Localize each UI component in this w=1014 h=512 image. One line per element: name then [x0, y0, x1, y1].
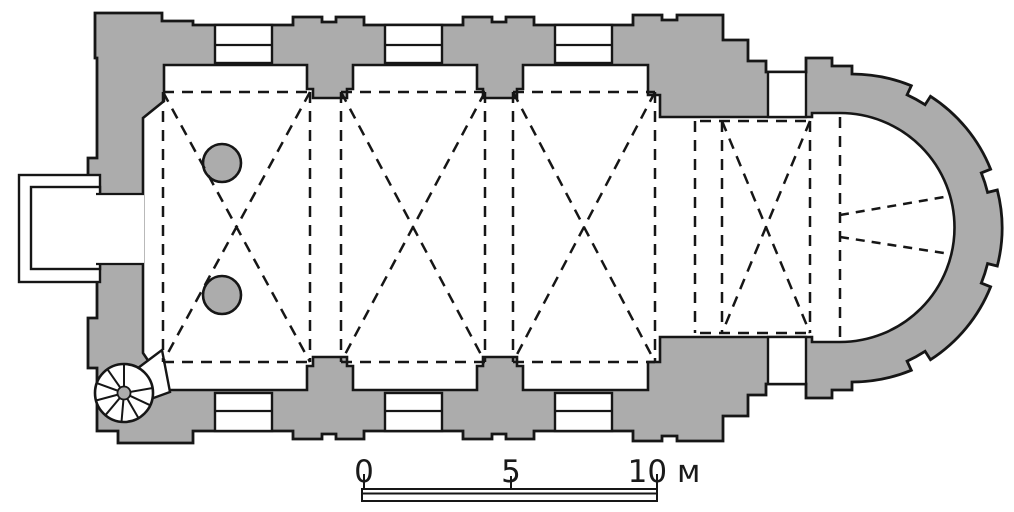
west-door-opening [96, 194, 144, 264]
floor-plan-svg: 0 5 10 м [0, 0, 1014, 512]
choir-window-north [768, 72, 806, 117]
scale-label: 0 [354, 454, 374, 490]
stair-newel [118, 387, 131, 400]
interior-space [143, 65, 955, 390]
porch-inner-wall [31, 187, 100, 269]
church-floor-plan-figure: 0 5 10 м [0, 0, 1014, 512]
scale-bar: 0 5 10 м [354, 454, 700, 501]
scale-label: 10 м [628, 454, 701, 490]
scale-label: 5 [501, 454, 521, 490]
choir-window-south [768, 337, 806, 384]
scale-bar-body [362, 489, 657, 501]
column [203, 276, 241, 314]
